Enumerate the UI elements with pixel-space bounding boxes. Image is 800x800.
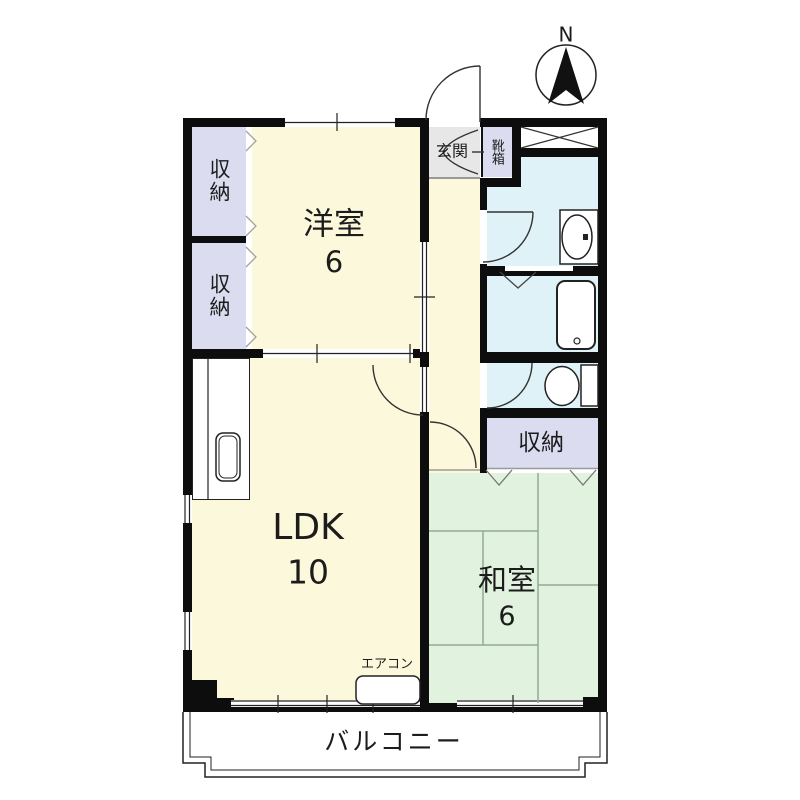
compass-circle (536, 45, 596, 105)
ldk-label: LDK (272, 509, 343, 547)
hallway (429, 178, 480, 473)
wall-east-column-b (480, 264, 487, 352)
japanese-room-label: 和室 (478, 565, 536, 595)
window-ldk-bottom (231, 700, 420, 707)
window-japaneseroom-bottom (457, 700, 583, 707)
entry-door-arc (426, 66, 480, 120)
slidingdoor-westernroom (420, 242, 429, 352)
north-arrow-icon (548, 47, 584, 104)
western-room-label: 洋室 (303, 209, 365, 242)
wall-hall-west-upper (420, 118, 429, 242)
pillar-bottom-right (583, 697, 607, 712)
ldk-size: 10 (287, 556, 329, 591)
kitchen-counter (192, 358, 250, 500)
closet-top-label: 収納 (208, 158, 230, 204)
floor-plan: N 収納 収納 洋室 6 玄関 靴箱 収納 LDK 10 和室 6 エアコン バ… (0, 0, 800, 800)
western-room-size: 6 (325, 247, 343, 277)
closet-bottom-label: 収納 (208, 273, 230, 319)
window-left-upper (183, 495, 192, 523)
opening-ldk-top (263, 349, 413, 358)
north-label: N (559, 25, 574, 46)
aircon-label: エアコン (361, 658, 413, 672)
wall-hall-west-mid (420, 352, 429, 367)
japanese-room-size: 6 (498, 603, 515, 631)
hall-closet-label: 収納 (518, 431, 564, 455)
washroom-upper (521, 157, 598, 187)
shoe-box-label: 靴箱 (489, 139, 503, 165)
wall-east-column-a (480, 187, 487, 210)
wall-bath-toilet (480, 352, 598, 363)
wall-hall-west-lower (420, 412, 429, 712)
window-left-lower (183, 612, 192, 650)
wall-east-column-c (480, 418, 487, 473)
wall-closet-divider (192, 236, 246, 243)
balcony-label: バルコニー (324, 729, 464, 755)
wall-right (598, 118, 607, 712)
wall-top (183, 118, 607, 127)
pipe-space (521, 127, 598, 148)
wall-shoebox-right (512, 127, 521, 187)
wall-toilet-closet (480, 408, 598, 418)
wall-below-closets (183, 349, 263, 358)
bathroom (487, 276, 598, 352)
opening-entrance-doorway (429, 118, 480, 127)
pillar-bottom-left-b (189, 698, 234, 712)
compass (536, 45, 596, 105)
washroom (487, 187, 598, 266)
window-westernroom-top (285, 118, 395, 127)
wall-pipespace-bottom (518, 148, 598, 157)
door-leaf-ldk (420, 367, 429, 412)
toilet-room (487, 363, 598, 408)
notch-wash-bath (505, 266, 573, 271)
entrance-label: 玄関 (436, 144, 468, 161)
